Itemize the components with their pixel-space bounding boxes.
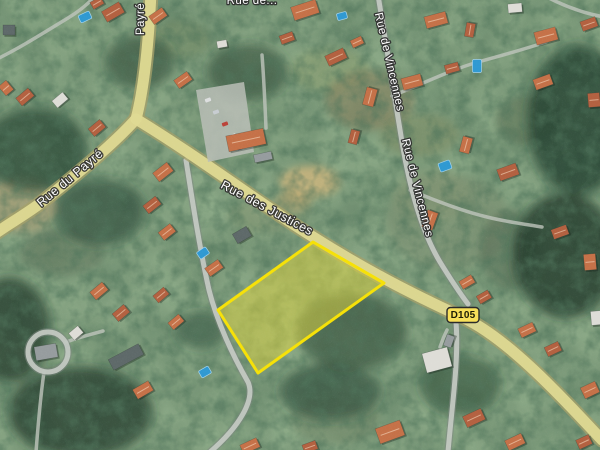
route-badge-label: D105 — [451, 310, 476, 321]
street-label-top-clipped: Rue de... — [227, 0, 278, 7]
map-canvas[interactable]: Rue de... Payré Rue du Payré Rue des Jus… — [0, 0, 600, 450]
street-label-payre-north: Payré — [135, 3, 147, 35]
satellite-map: Rue de... Payré Rue du Payré Rue des Jus… — [0, 0, 600, 450]
route-badge-d105: D105 — [447, 308, 479, 323]
